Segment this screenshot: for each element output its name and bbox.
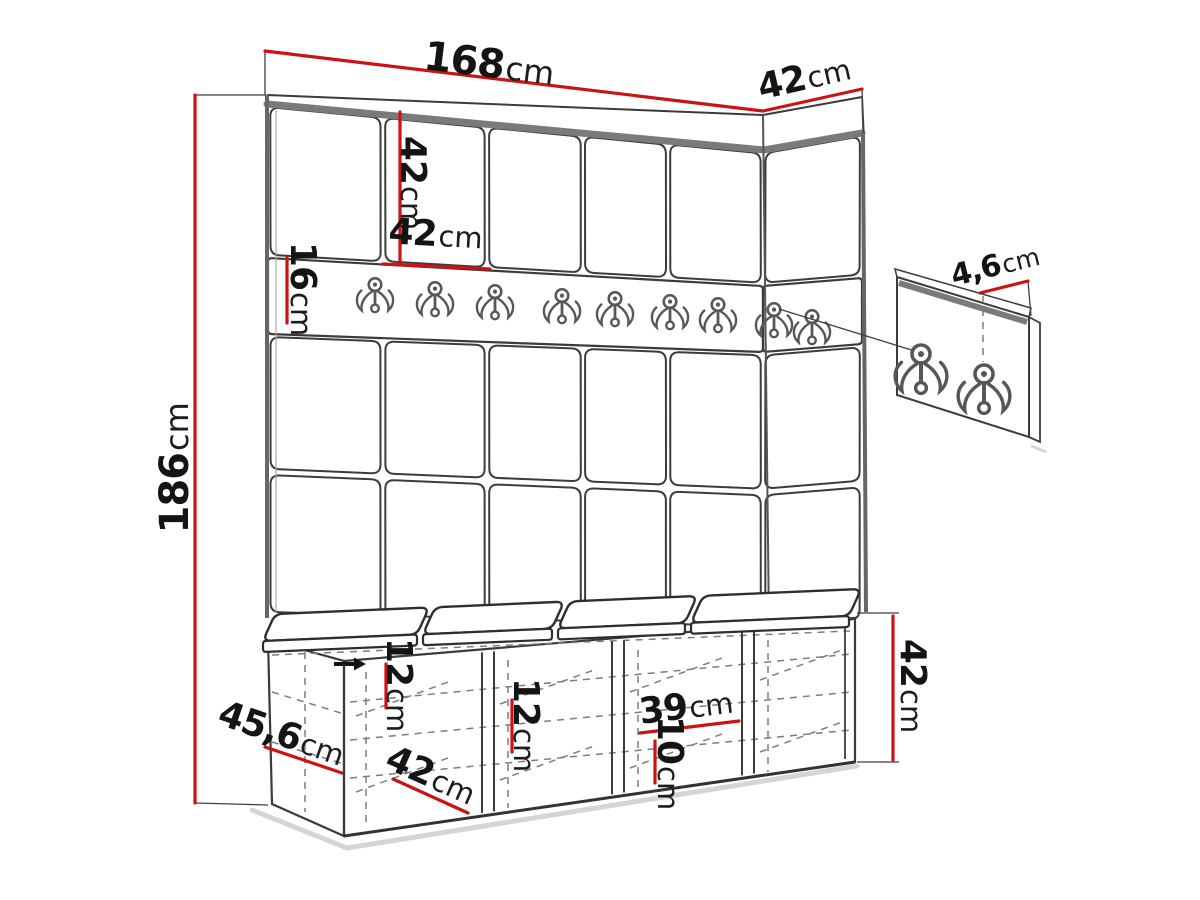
- dimension-value: 42: [892, 639, 933, 687]
- dimension-unit: cm: [651, 766, 685, 810]
- dimension-label: 42 cm: [892, 639, 933, 733]
- upholstered-panel-side: [765, 348, 860, 488]
- upholstered-panel: [670, 145, 761, 282]
- upholstered-panel: [271, 337, 381, 473]
- upholstered-panel: [585, 138, 666, 277]
- dimension-value: 10: [649, 716, 690, 764]
- dimension-unit: cm: [687, 686, 735, 725]
- dimension-bench-shelf-gap-right: 10 cm: [649, 716, 690, 810]
- dimension-value: 42: [387, 211, 437, 254]
- dimension-label: 12 cm: [505, 678, 546, 772]
- furniture-dimension-diagram: 168 cm 42 cm 42 cm 42 cm 16 cm: [0, 0, 1200, 900]
- dimension-unit: cm: [284, 292, 318, 336]
- upholstered-panel: [489, 129, 581, 272]
- dimension-unit: cm: [507, 728, 541, 772]
- upholstered-panel: [585, 349, 666, 484]
- dimension-unit: cm: [503, 49, 556, 93]
- upholstered-panel-side: [765, 138, 860, 282]
- dimension-value: 42: [392, 136, 433, 184]
- dimension-unit: cm: [894, 689, 928, 733]
- wall-panel-grid: [270, 108, 860, 626]
- upholstered-panel: [270, 108, 380, 261]
- upholstered-panel: [271, 475, 381, 615]
- dimension-value: 168: [421, 33, 507, 88]
- dimension-label: 10 cm: [649, 716, 690, 810]
- diagram-canvas: 168 cm 42 cm 42 cm 42 cm 16 cm: [0, 0, 1200, 900]
- dimension-value: 16: [282, 242, 323, 290]
- dimension-unit: cm: [438, 219, 484, 255]
- dimension-hook-rail-height: 16 cm: [282, 242, 323, 336]
- dimension-label: 16 cm: [282, 242, 323, 336]
- dimension-unit: cm: [158, 402, 196, 451]
- upholstered-panel: [670, 352, 761, 488]
- dimension-label: 12 cm: [378, 638, 419, 732]
- upholstered-panel: [385, 342, 484, 478]
- dimension-bench-shelf-gap-middle: 12 cm: [505, 678, 546, 772]
- upholstered-panel: [385, 480, 484, 618]
- dimension-value: 186: [152, 453, 198, 534]
- dimension-value: 12: [505, 678, 546, 726]
- dimension-unit: cm: [380, 688, 414, 732]
- upholstered-panel: [489, 346, 581, 481]
- dimension-label: 186 cm: [152, 402, 198, 533]
- dimension-value: 12: [378, 638, 419, 686]
- upholstered-panel: [489, 485, 581, 621]
